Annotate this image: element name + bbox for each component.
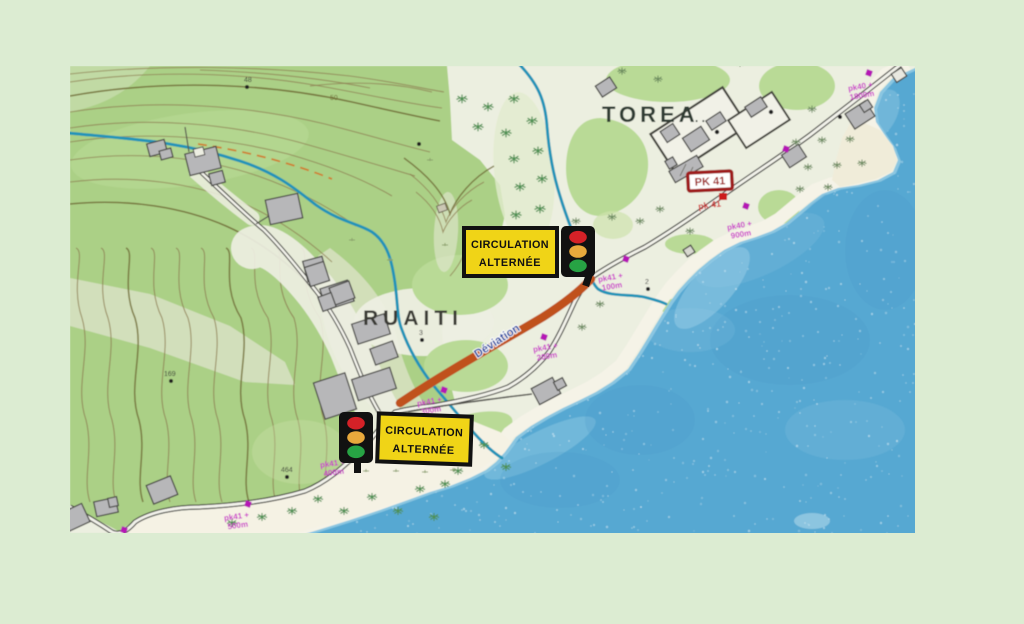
svg-text:2: 2 [645, 279, 649, 286]
svg-text:50: 50 [330, 95, 338, 102]
svg-text:169: 169 [164, 371, 176, 378]
svg-text:3: 3 [419, 330, 423, 337]
svg-text:ALTERNÉE: ALTERNÉE [392, 442, 455, 457]
svg-text:48: 48 [244, 77, 252, 84]
svg-text:464: 464 [281, 467, 293, 474]
svg-text:ALTERNÉE: ALTERNÉE [479, 256, 541, 269]
svg-text:. .: . . [695, 111, 705, 125]
svg-text:CIRCULATION: CIRCULATION [471, 239, 549, 251]
svg-text:RUAITI: RUAITI [363, 307, 463, 330]
svg-text:TOREA: TOREA [602, 102, 699, 127]
svg-text:PK 41: PK 41 [694, 175, 725, 189]
